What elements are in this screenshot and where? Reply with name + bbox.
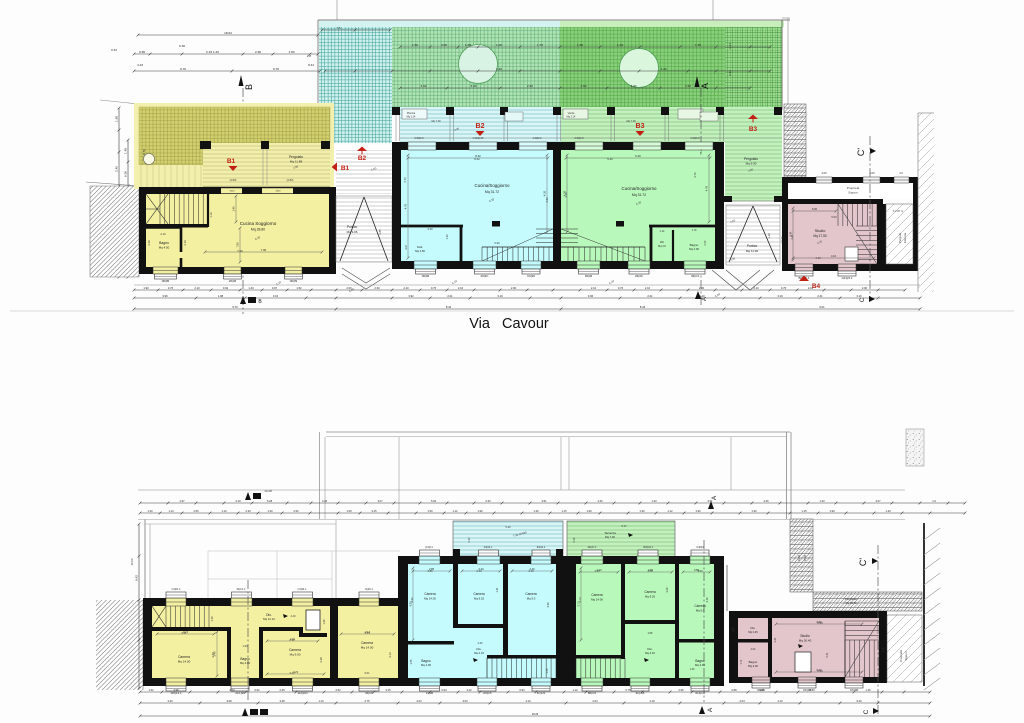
svg-text:1.12: 1.12 (572, 688, 578, 692)
svg-text:0.33: 0.33 (111, 48, 117, 52)
svg-text:06|06: 06|06 (422, 274, 430, 278)
svg-text:1.62|2.2: 1.62|2.2 (533, 137, 543, 140)
svg-text:Camera: Camera (525, 592, 537, 596)
svg-text:26|36: 26|36 (229, 279, 237, 283)
svg-text:2.62: 2.62 (420, 84, 426, 88)
svg-text:1.26: 1.26 (882, 647, 885, 652)
svg-text:3.15: 3.15 (371, 509, 377, 513)
svg-text:0.32: 0.32 (223, 286, 229, 290)
svg-text:2.21: 2.21 (647, 294, 653, 298)
svg-text:3600: 3600 (276, 191, 282, 193)
svg-text:44|34.1: 44|34.1 (484, 545, 493, 549)
svg-text:A: A (707, 707, 714, 712)
svg-text:2.45: 2.45 (279, 688, 285, 692)
svg-text:Mq 4.00: Mq 4.00 (421, 663, 432, 667)
svg-text:Mq 14.00: Mq 14.00 (361, 646, 374, 650)
svg-text:A: A (700, 83, 710, 89)
svg-text:3.51: 3.51 (541, 499, 547, 503)
svg-text:Mq 14.00: Mq 14.00 (178, 660, 191, 664)
svg-text:4.10: 4.10 (525, 699, 531, 703)
svg-text:3.13: 3.13 (388, 652, 392, 658)
svg-text:2.10: 2.10 (591, 286, 597, 290)
svg-text:1.33: 1.33 (819, 499, 825, 503)
svg-text:5.40: 5.40 (635, 154, 641, 158)
svg-text:3.10: 3.10 (497, 294, 503, 298)
svg-text:6.59: 6.59 (817, 621, 823, 625)
svg-text:2.52: 2.52 (293, 509, 299, 513)
svg-text:18.94: 18.94 (224, 31, 232, 35)
svg-text:0.76: 0.76 (168, 286, 174, 290)
svg-text:3.19: 3.19 (235, 499, 241, 503)
svg-text:Mq 4.50: Mq 4.50 (415, 249, 425, 253)
svg-text:3.03: 3.03 (462, 699, 468, 703)
svg-text:B1: B1 (341, 165, 350, 172)
svg-text:h 2.07 m: h 2.07 m (893, 209, 904, 213)
svg-text:3.96: 3.96 (588, 294, 594, 298)
svg-text:Pergolato: Pergolato (744, 157, 758, 161)
svg-text:1.95: 1.95 (115, 116, 119, 122)
svg-text:4.10: 4.10 (777, 699, 783, 703)
svg-text:Bagno: Bagno (159, 241, 169, 245)
svg-text:4.26: 4.26 (543, 190, 547, 196)
svg-text:2.40: 2.40 (478, 642, 483, 645)
svg-text:1.90: 1.90 (695, 509, 701, 513)
svg-text:3.50: 3.50 (697, 569, 703, 573)
svg-text:Mq 31.72: Mq 31.72 (485, 190, 499, 194)
svg-text:3.01: 3.01 (364, 671, 370, 675)
svg-text:3.10: 3.10 (856, 294, 862, 298)
svg-text:Mq 9.0: Mq 9.0 (696, 609, 705, 613)
svg-text:9.42: 9.42 (135, 575, 139, 581)
svg-text:2.52: 2.52 (335, 688, 341, 692)
svg-text:Bagno: Bagno (690, 243, 699, 247)
svg-text:4.19: 4.19 (649, 699, 655, 703)
svg-text:5.28: 5.28 (267, 499, 273, 503)
svg-text:2.04: 2.04 (592, 699, 598, 703)
svg-text:2.62: 2.62 (685, 84, 691, 88)
svg-text:Piscina: Piscina (407, 111, 416, 115)
svg-text:2.75: 2.75 (364, 699, 370, 703)
svg-text:0.75: 0.75 (625, 688, 631, 692)
svg-text:Mq 14.00: Mq 14.00 (424, 597, 436, 601)
svg-text:3.67: 3.67 (404, 244, 408, 250)
svg-text:2.00: 2.00 (346, 286, 352, 290)
svg-text:1.26: 1.26 (546, 668, 549, 673)
svg-text:(2.80): (2.80) (230, 178, 237, 182)
svg-text:2.00: 2.00 (699, 286, 705, 290)
svg-text:(14|C1: (14|C1 (425, 545, 433, 549)
svg-text:1.13: 1.13 (168, 509, 174, 513)
svg-text:1.50: 1.50 (412, 43, 418, 47)
svg-text:C: C (863, 709, 870, 714)
svg-text:2.94: 2.94 (728, 70, 732, 76)
svg-text:Studio: Studio (815, 229, 826, 233)
svg-text:Mq 17.50: Mq 17.50 (813, 234, 827, 238)
svg-text:Signori: Signori (848, 191, 858, 195)
svg-text:4.76: 4.76 (404, 203, 408, 209)
svg-text:Esterna: Esterna (903, 233, 907, 244)
svg-text:7.00: 7.00 (261, 248, 267, 252)
svg-text:(2.80): (2.80) (287, 178, 294, 182)
svg-text:2.96: 2.96 (678, 688, 684, 692)
svg-text:0.76: 0.76 (431, 286, 437, 290)
svg-text:7.00: 7.00 (237, 249, 243, 253)
svg-text:4.30: 4.30 (410, 597, 414, 603)
svg-text:2.10: 2.10 (645, 286, 651, 290)
svg-text:6.29: 6.29 (817, 669, 823, 673)
svg-text:1.34: 1.34 (728, 43, 732, 49)
svg-text:B3: B3 (749, 126, 758, 133)
svg-text:Dis.: Dis. (647, 647, 652, 651)
svg-text:2.50: 2.50 (193, 509, 199, 513)
svg-text:1.30: 1.30 (885, 509, 891, 513)
svg-text:1.26: 1.26 (210, 616, 214, 622)
svg-text:4.76: 4.76 (403, 177, 407, 183)
svg-text:55.2: 55.2 (699, 149, 703, 155)
svg-text:Mq 14.06: Mq 14.06 (591, 598, 603, 602)
svg-text:4.23: 4.23 (137, 63, 143, 67)
svg-text:A: A (711, 495, 718, 500)
svg-text:B3: B3 (636, 123, 645, 130)
svg-text:Terrazza: Terrazza (604, 531, 616, 535)
svg-text:1.30: 1.30 (267, 509, 273, 513)
svg-text:1.10: 1.10 (767, 233, 771, 239)
svg-text:Signori: Signori (904, 651, 908, 660)
svg-text:3.48: 3.48 (279, 699, 285, 703)
svg-text:0.80|0.9: 0.80|0.9 (575, 137, 585, 140)
svg-text:363|34.1: 363|34.1 (643, 545, 654, 549)
svg-text:1.14: 1.14 (660, 230, 665, 233)
svg-text:Dis.: Dis. (751, 626, 756, 630)
svg-text:7.5: 7.5 (336, 26, 341, 30)
svg-text:1.10: 1.10 (209, 212, 213, 218)
svg-text:34|3C.1: 34|3C.1 (587, 545, 597, 549)
svg-text:4.0: 4.0 (899, 171, 903, 175)
svg-text:Mq 9.00: Mq 9.00 (290, 653, 301, 657)
svg-text:3.26: 3.26 (665, 587, 669, 593)
svg-text:1.15: 1.15 (561, 509, 567, 513)
svg-text:2.38: 2.38 (319, 657, 323, 663)
svg-text:Portico: Portico (747, 244, 758, 248)
svg-text:0.30: 0.30 (572, 537, 576, 543)
svg-text:3.13: 3.13 (364, 631, 370, 635)
svg-text:1.70: 1.70 (537, 43, 543, 47)
svg-text:2.04: 2.04 (739, 699, 745, 703)
svg-text:26|3C: 26|3C (481, 274, 490, 278)
svg-text:4.46: 4.46 (322, 499, 328, 503)
svg-text:1.98: 1.98 (218, 294, 224, 298)
svg-text:1.50: 1.50 (288, 50, 294, 54)
svg-text:1.50: 1.50 (346, 509, 352, 513)
svg-text:Proprietà: Proprietà (899, 650, 903, 662)
svg-text:4.76: 4.76 (705, 185, 709, 191)
svg-text:10.30: 10.30 (803, 554, 807, 561)
svg-text:2.40: 2.40 (115, 166, 119, 172)
svg-text:C6|39: C6|39 (527, 274, 535, 278)
svg-text:1.35: 1.35 (695, 43, 701, 47)
svg-text:4.06: 4.06 (821, 171, 827, 175)
svg-text:4.26: 4.26 (545, 197, 549, 203)
svg-text:14.70: 14.70 (780, 236, 784, 243)
svg-text:2.30: 2.30 (374, 286, 380, 290)
svg-text:C.80|2.06: C.80|2.06 (473, 137, 484, 140)
svg-text:3.98: 3.98 (173, 688, 179, 692)
svg-text:0.80|0.9: 0.80|0.9 (691, 137, 701, 140)
svg-text:18.26: 18.26 (532, 712, 539, 716)
svg-text:84|34.1: 84|34.1 (537, 545, 546, 549)
svg-text:36|36: 36|36 (585, 274, 593, 278)
svg-text:Sott.: Sott. (417, 245, 423, 249)
svg-text:1.40: 1.40 (232, 206, 236, 212)
svg-text:3.10: 3.10 (777, 294, 783, 298)
svg-text:4.10: 4.10 (815, 256, 821, 260)
svg-text:1.90: 1.90 (143, 286, 149, 290)
svg-text:5.47: 5.47 (621, 524, 627, 528)
svg-text:0.92: 0.92 (254, 688, 260, 692)
svg-text:3.92: 3.92 (408, 294, 414, 298)
svg-text:4.03: 4.03 (416, 699, 422, 703)
svg-text:3.07: 3.07 (377, 499, 383, 503)
svg-text:3600: 3600 (230, 191, 236, 193)
svg-text:14.28: 14.28 (264, 489, 272, 493)
svg-text:C4|9|3: C4|9|3 (696, 545, 704, 549)
svg-text:Mq 11.88: Mq 11.88 (290, 160, 303, 164)
svg-text:5.40: 5.40 (607, 157, 613, 161)
svg-text:3.73: 3.73 (578, 597, 582, 603)
svg-text:3.30: 3.30 (427, 227, 433, 231)
svg-text:1.30: 1.30 (533, 509, 539, 513)
svg-text:0.76: 0.76 (618, 286, 624, 290)
svg-text:Camera: Camera (289, 648, 301, 652)
svg-text:0.30: 0.30 (467, 537, 471, 543)
svg-text:0.93: 0.93 (519, 688, 525, 692)
svg-text:2.10: 2.10 (458, 286, 464, 290)
svg-text:Mq 11.90: Mq 11.90 (746, 249, 759, 253)
svg-text:Camera: Camera (424, 592, 436, 596)
svg-text:1.79: 1.79 (692, 229, 697, 232)
svg-text:B2: B2 (476, 123, 485, 130)
svg-text:2.04: 2.04 (751, 648, 756, 651)
svg-text:Cucina/Soggiorno: Cucina/Soggiorno (622, 186, 657, 191)
svg-text:0.80: 0.80 (809, 688, 815, 692)
svg-text:1.90: 1.90 (829, 509, 835, 513)
svg-text:Mq 3.14: Mq 3.14 (407, 116, 416, 119)
svg-text:1.46: 1.46 (690, 668, 695, 671)
svg-text:Camera: Camera (473, 592, 485, 596)
svg-text:1.00: 1.00 (496, 43, 502, 47)
svg-text:06|05: 06|05 (162, 279, 170, 283)
svg-text:Mq 9.90: Mq 9.90 (746, 162, 757, 166)
svg-text:2.00: 2.00 (511, 286, 517, 290)
svg-text:2.15 1.20: 2.15 1.20 (206, 50, 219, 54)
svg-text:2.20: 2.20 (704, 240, 707, 245)
svg-text:1.30: 1.30 (639, 509, 645, 513)
svg-text:3.40: 3.40 (167, 699, 173, 703)
svg-text:Camera: Camera (644, 590, 656, 594)
svg-text:2.10: 2.10 (183, 240, 187, 246)
svg-text:3.07: 3.07 (875, 499, 881, 503)
svg-text:O 50: O 50 (142, 149, 146, 156)
svg-text:0.30: 0.30 (179, 44, 185, 48)
svg-text:06|39: 06|39 (290, 279, 298, 283)
svg-text:0.33: 0.33 (485, 499, 491, 503)
svg-text:3.96: 3.96 (162, 294, 168, 298)
svg-text:C': C' (858, 558, 868, 566)
svg-text:2.62: 2.62 (580, 84, 586, 88)
svg-text:Mq 12.12: Mq 12.12 (263, 617, 275, 621)
svg-text:34|C1.1: 34|C1.1 (236, 587, 246, 591)
svg-text:1.10: 1.10 (221, 509, 227, 513)
svg-text:Mq 31.72: Mq 31.72 (632, 193, 646, 197)
svg-text:0.95: 0.95 (139, 50, 145, 54)
svg-text:B2: B2 (358, 155, 367, 162)
svg-text:1.46: 1.46 (322, 619, 326, 625)
svg-text:2.88: 2.88 (648, 632, 653, 635)
svg-text:Wc: Wc (660, 240, 665, 244)
svg-text:1.30: 1.30 (147, 509, 153, 513)
svg-text:5.41: 5.41 (825, 652, 829, 658)
svg-text:3.40: 3.40 (211, 652, 215, 658)
svg-text:Mq 9.0: Mq 9.0 (527, 597, 536, 601)
svg-text:1.30: 1.30 (445, 234, 449, 240)
svg-text:2.85: 2.85 (427, 569, 433, 573)
svg-text:1.62: 1.62 (148, 688, 154, 692)
svg-text:3.22: 3.22 (466, 688, 472, 692)
svg-text:9.20: 9.20 (856, 699, 862, 703)
svg-text:6.36: 6.36 (124, 171, 128, 177)
svg-text:1.90: 1.90 (242, 644, 248, 648)
svg-text:36|C3: 36|C3 (691, 274, 699, 278)
svg-text:Mq 9.02: Mq 9.02 (474, 597, 485, 601)
svg-text:Bagno: Bagno (749, 660, 758, 664)
svg-text:4.46: 4.46 (763, 499, 769, 503)
svg-text:Mq 3.14: Mq 3.14 (567, 116, 576, 119)
svg-text:7.90: 7.90 (236, 242, 240, 248)
svg-text:2.20: 2.20 (147, 240, 151, 246)
svg-text:2.62: 2.62 (527, 84, 533, 88)
svg-text:0.94: 0.94 (441, 688, 447, 692)
svg-text:4.10: 4.10 (831, 254, 837, 258)
svg-text:Mq 4.06: Mq 4.06 (689, 247, 699, 251)
svg-text:Mq 28.80: Mq 28.80 (251, 228, 265, 232)
svg-text:2.40: 2.40 (290, 614, 296, 618)
svg-text:4.26: 4.26 (564, 192, 568, 198)
svg-text:16.00: 16.00 (130, 558, 134, 565)
svg-text:B1: B1 (227, 158, 236, 165)
svg-text:Cucina/Soggiorno: Cucina/Soggiorno (475, 183, 510, 188)
svg-text:Mq 9.26: Mq 9.26 (645, 595, 656, 599)
svg-text:3.21: 3.21 (181, 631, 187, 635)
svg-text:Proprietà: Proprietà (847, 186, 860, 190)
svg-text:Mq 4.06: Mq 4.06 (240, 661, 251, 665)
svg-text:Pergola: Pergola (898, 233, 902, 244)
svg-text:2.97: 2.97 (179, 499, 185, 503)
svg-text:Mq 4.00: Mq 4.00 (748, 664, 758, 668)
svg-text:8.44: 8.44 (308, 63, 314, 67)
svg-text:9.70: 9.70 (232, 305, 238, 309)
svg-text:1.36: 1.36 (865, 688, 871, 692)
svg-text:2.00: 2.00 (862, 286, 868, 290)
svg-text:Mq 4.16: Mq 4.16 (474, 651, 484, 655)
svg-text:2.10: 2.10 (160, 232, 166, 236)
svg-text:Studio: Studio (800, 634, 810, 638)
svg-text:3.00: 3.00 (630, 84, 636, 88)
svg-text:Mq 9.06: Mq 9.06 (347, 230, 358, 234)
svg-text:Mq 7.30: Mq 7.30 (605, 535, 615, 539)
svg-text:2.53: 2.53 (229, 688, 235, 692)
svg-text:3.40: 3.40 (496, 67, 502, 71)
svg-text:2.10: 2.10 (753, 286, 759, 290)
svg-text:A: A (702, 297, 708, 301)
svg-text:Dis.: Dis. (476, 647, 481, 651)
svg-text:1.71: 1.71 (740, 659, 743, 664)
svg-text:5.00: 5.00 (831, 215, 837, 219)
svg-text:B4: B4 (812, 283, 821, 290)
svg-text:Via Cavour: Via Cavour (469, 316, 549, 332)
svg-text:1.35: 1.35 (410, 659, 413, 664)
svg-text:B: B (244, 84, 254, 90)
svg-text:3.00: 3.00 (470, 84, 476, 88)
svg-text:26|3C: 26|3C (635, 274, 644, 278)
svg-text:2.21: 2.21 (817, 294, 823, 298)
svg-text:D|29.1: D|29.1 (365, 587, 373, 591)
svg-text:Mq 7.28: Mq 7.28 (431, 120, 441, 123)
svg-text:1.41: 1.41 (495, 587, 499, 593)
svg-text:1.46: 1.46 (759, 688, 765, 692)
svg-text:1.12: 1.12 (452, 509, 458, 513)
svg-text:1.45: 1.45 (124, 148, 128, 154)
svg-text:5.00: 5.00 (812, 207, 818, 211)
svg-text:1.15: 1.15 (801, 509, 807, 513)
svg-text:GF1|9.1: GF1|9.1 (842, 276, 853, 280)
svg-text:Pergolato: Pergolato (845, 597, 857, 601)
svg-text:1.35: 1.35 (577, 43, 583, 47)
svg-text:Mq 4.50: Mq 4.50 (159, 246, 170, 250)
svg-text:2.10: 2.10 (403, 286, 409, 290)
svg-text:8.44: 8.44 (640, 305, 646, 309)
svg-text:C': C' (856, 148, 866, 156)
svg-text:0.97: 0.97 (272, 286, 278, 290)
svg-text:3.10: 3.10 (273, 294, 279, 298)
svg-text:3.23: 3.23 (289, 671, 295, 675)
svg-text:2.23: 2.23 (594, 569, 600, 573)
svg-text:2.30: 2.30 (245, 509, 251, 513)
svg-text:2.96: 2.96 (255, 50, 261, 54)
svg-text:Portico: Portico (347, 225, 358, 229)
svg-text:Mq 2.6: Mq 2.6 (658, 245, 666, 248)
svg-text:4.76: 4.76 (693, 172, 697, 178)
svg-text:1.33: 1.33 (651, 499, 657, 503)
svg-text:8.42: 8.42 (474, 157, 480, 161)
svg-text:2.40: 2.40 (528, 569, 534, 573)
svg-text:C4|34.1: C4|34.1 (297, 587, 307, 591)
svg-text:5.92: 5.92 (431, 499, 437, 503)
svg-text:2.40: 2.40 (476, 569, 482, 573)
svg-text:0.80|0.9: 0.80|0.9 (415, 137, 425, 140)
svg-text:Mq 4.16: Mq 4.16 (645, 651, 655, 655)
svg-text:5.40: 5.40 (505, 525, 511, 529)
svg-text:2.31: 2.31 (289, 638, 295, 642)
svg-text:1.10: 1.10 (318, 699, 324, 703)
svg-text:C4|01.1: C4|01.1 (171, 587, 181, 591)
svg-text:1.52: 1.52 (296, 286, 302, 290)
svg-text:2.60: 2.60 (647, 569, 653, 573)
svg-text:3.40: 3.40 (660, 67, 666, 71)
svg-text:2.21: 2.21 (447, 294, 453, 298)
svg-text:3.85: 3.85 (378, 229, 382, 235)
svg-text:4.16: 4.16 (705, 597, 709, 603)
svg-text:3.41: 3.41 (773, 637, 777, 643)
